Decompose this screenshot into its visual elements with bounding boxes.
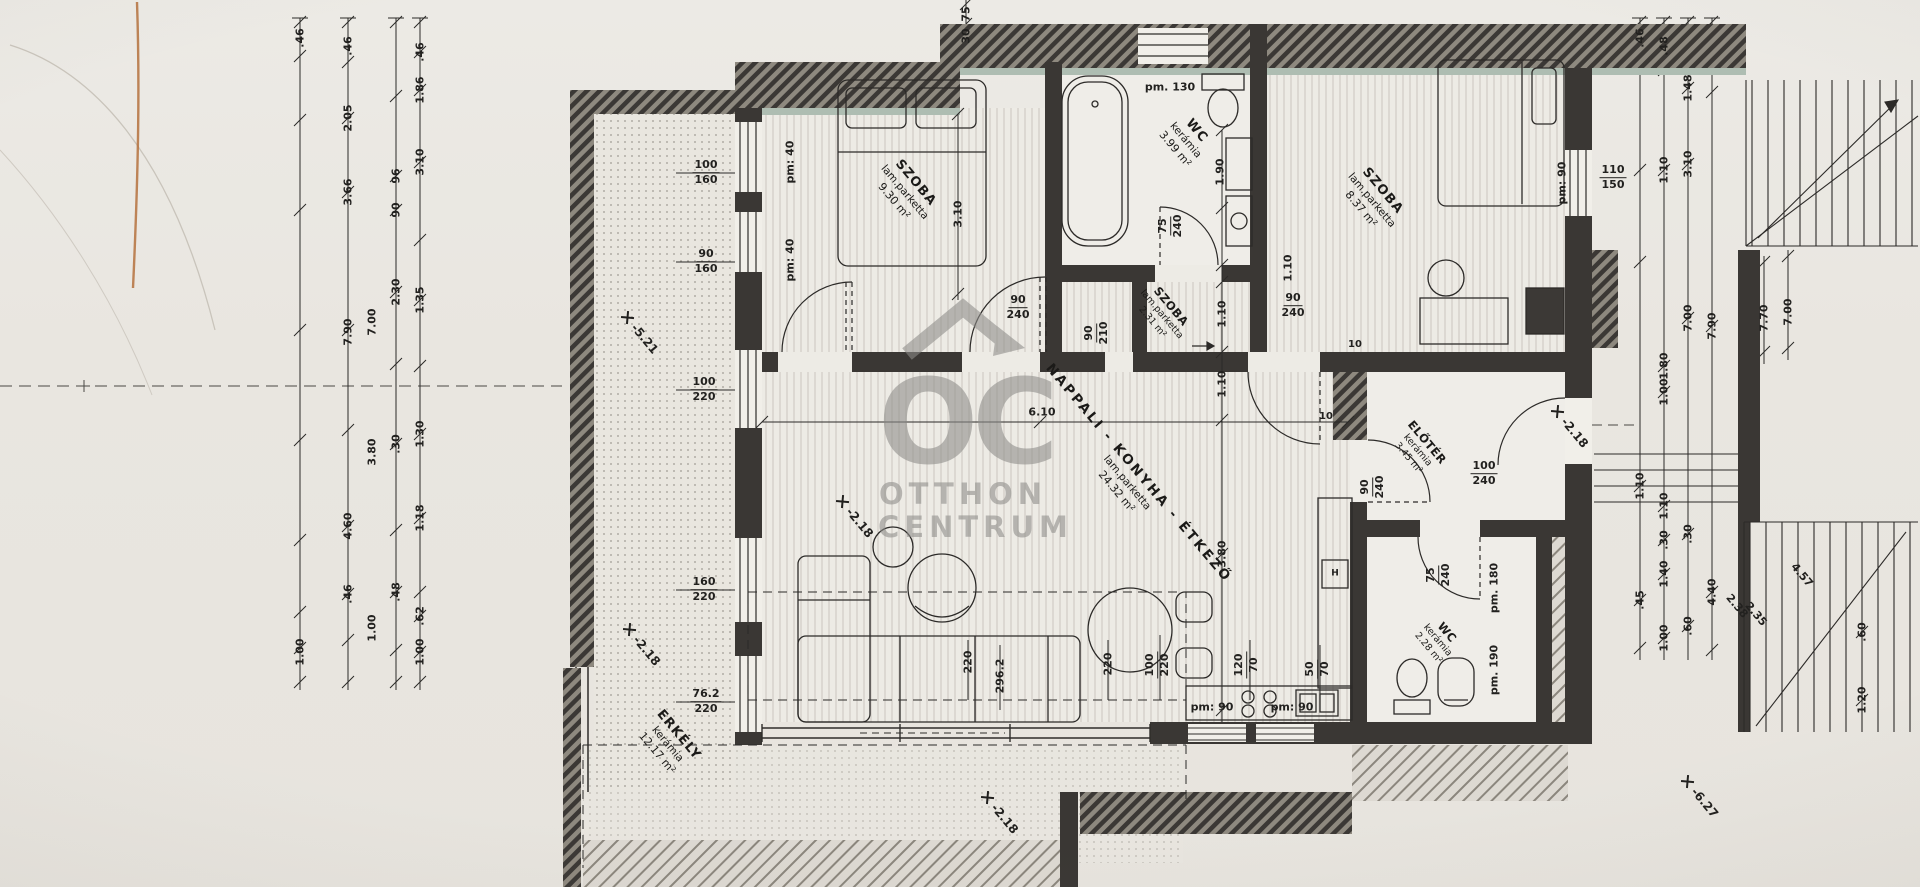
floor-plan-drawing bbox=[0, 0, 1920, 887]
floorplan-sheet: OC OTTHON CENTRUM .46.46.461.862.053.109… bbox=[0, 0, 1920, 887]
stairs bbox=[1592, 80, 1918, 732]
